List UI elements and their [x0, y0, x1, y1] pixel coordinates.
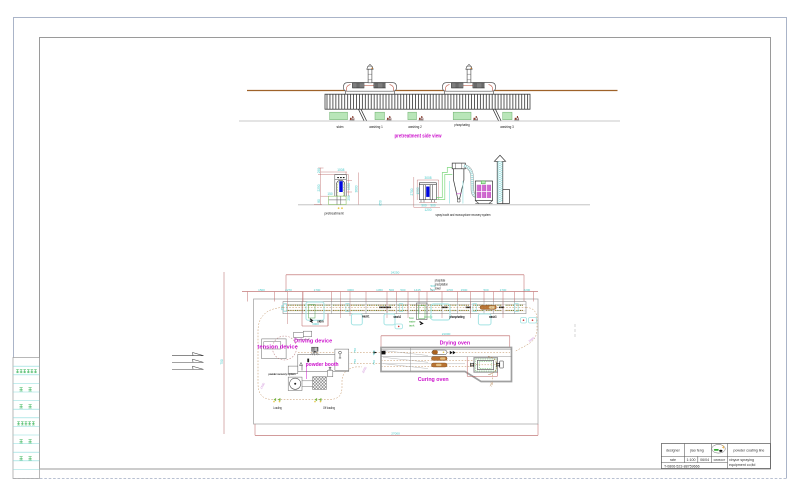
svg-text:21000: 21000	[442, 332, 451, 336]
svg-text:250: 250	[347, 195, 351, 201]
svg-text:900: 900	[430, 204, 436, 208]
svg-text:750: 750	[372, 350, 376, 355]
svg-text:wash2: wash2	[393, 315, 401, 319]
svg-text:1445: 1445	[414, 288, 421, 292]
svg-text:06/04: 06/04	[700, 458, 709, 462]
svg-text:skim: skim	[317, 319, 324, 323]
svg-text:500: 500	[483, 288, 488, 292]
svg-text:1:100: 1:100	[687, 458, 696, 462]
svg-text:powder recovery system: powder recovery system	[269, 372, 297, 376]
svg-text:1008: 1008	[337, 168, 344, 172]
svg-text:1450: 1450	[376, 288, 383, 292]
svg-text:tank: tank	[409, 323, 415, 327]
svg-text:500: 500	[389, 288, 394, 292]
svg-text:650: 650	[379, 200, 383, 206]
svg-text:Curing oven: Curing oven	[418, 377, 449, 383]
svg-text:3000: 3000	[347, 288, 354, 292]
svg-text:washing 1: washing 1	[369, 125, 383, 129]
svg-text:1500: 1500	[258, 288, 265, 292]
svg-text:1200: 1200	[424, 208, 431, 212]
svg-text:T-0806-523-88759666: T-0806-523-88759666	[664, 464, 700, 468]
svg-text:wash3: wash3	[488, 315, 496, 319]
svg-text:290: 290	[317, 168, 321, 174]
svg-text:24250: 24250	[391, 271, 400, 275]
svg-text:powder booth: powder booth	[306, 362, 340, 368]
svg-text:equipment co;ltd: equipment co;ltd	[729, 463, 755, 467]
svg-text:1520: 1520	[347, 183, 351, 190]
svg-text:jiao feng: jiao feng	[689, 449, 704, 453]
svg-text:tension device: tension device	[257, 344, 298, 350]
svg-text:spray booth and monocyclone re: spray booth and monocyclone recovery sys…	[436, 213, 491, 217]
svg-text:0805607: 0805607	[714, 458, 726, 462]
svg-text:1700: 1700	[314, 288, 321, 292]
svg-text:1700: 1700	[446, 288, 453, 292]
svg-text:pretreatment side view: pretreatment side view	[395, 133, 443, 139]
svg-text:750: 750	[220, 359, 224, 365]
svg-text:1700: 1700	[500, 288, 507, 292]
svg-text:750: 750	[353, 348, 357, 353]
svg-text:Off loading: Off loading	[323, 406, 335, 410]
svg-text:phosphating: phosphating	[454, 123, 470, 127]
svg-text:2700: 2700	[410, 188, 414, 195]
svg-text:tower: tower	[435, 287, 442, 291]
svg-text:80: 80	[317, 199, 321, 203]
svg-text:2200: 2200	[524, 288, 531, 292]
svg-text:washing 3: washing 3	[500, 125, 514, 129]
svg-text:phosphating: phosphating	[450, 315, 465, 319]
svg-text:powder coating line: powder coating line	[733, 449, 764, 453]
svg-text:3600: 3600	[354, 185, 358, 192]
svg-text:2250: 2250	[317, 184, 321, 191]
svg-text:750: 750	[372, 360, 376, 365]
svg-text:wash1: wash1	[361, 315, 369, 319]
svg-text:2270: 2270	[285, 288, 292, 292]
svg-text:150: 150	[327, 192, 333, 196]
svg-text:1500: 1500	[461, 288, 468, 292]
svg-text:pretreatment: pretreatment	[325, 212, 344, 216]
svg-text:27000: 27000	[391, 432, 400, 436]
svg-text:500: 500	[400, 288, 405, 292]
svg-text:Loading: Loading	[273, 406, 282, 410]
svg-text:rate: rate	[670, 458, 676, 462]
svg-text:900: 900	[421, 204, 427, 208]
svg-text:xinyue spraying: xinyue spraying	[729, 458, 754, 462]
svg-text:Drying oven: Drying oven	[440, 341, 471, 347]
svg-text:designer: designer	[666, 449, 681, 453]
svg-text:3008: 3008	[424, 176, 431, 180]
svg-text:skim: skim	[337, 125, 344, 129]
svg-text:750: 750	[353, 359, 357, 364]
svg-text:washing 2: washing 2	[408, 125, 422, 129]
svg-text:Driving device: Driving device	[294, 338, 332, 344]
